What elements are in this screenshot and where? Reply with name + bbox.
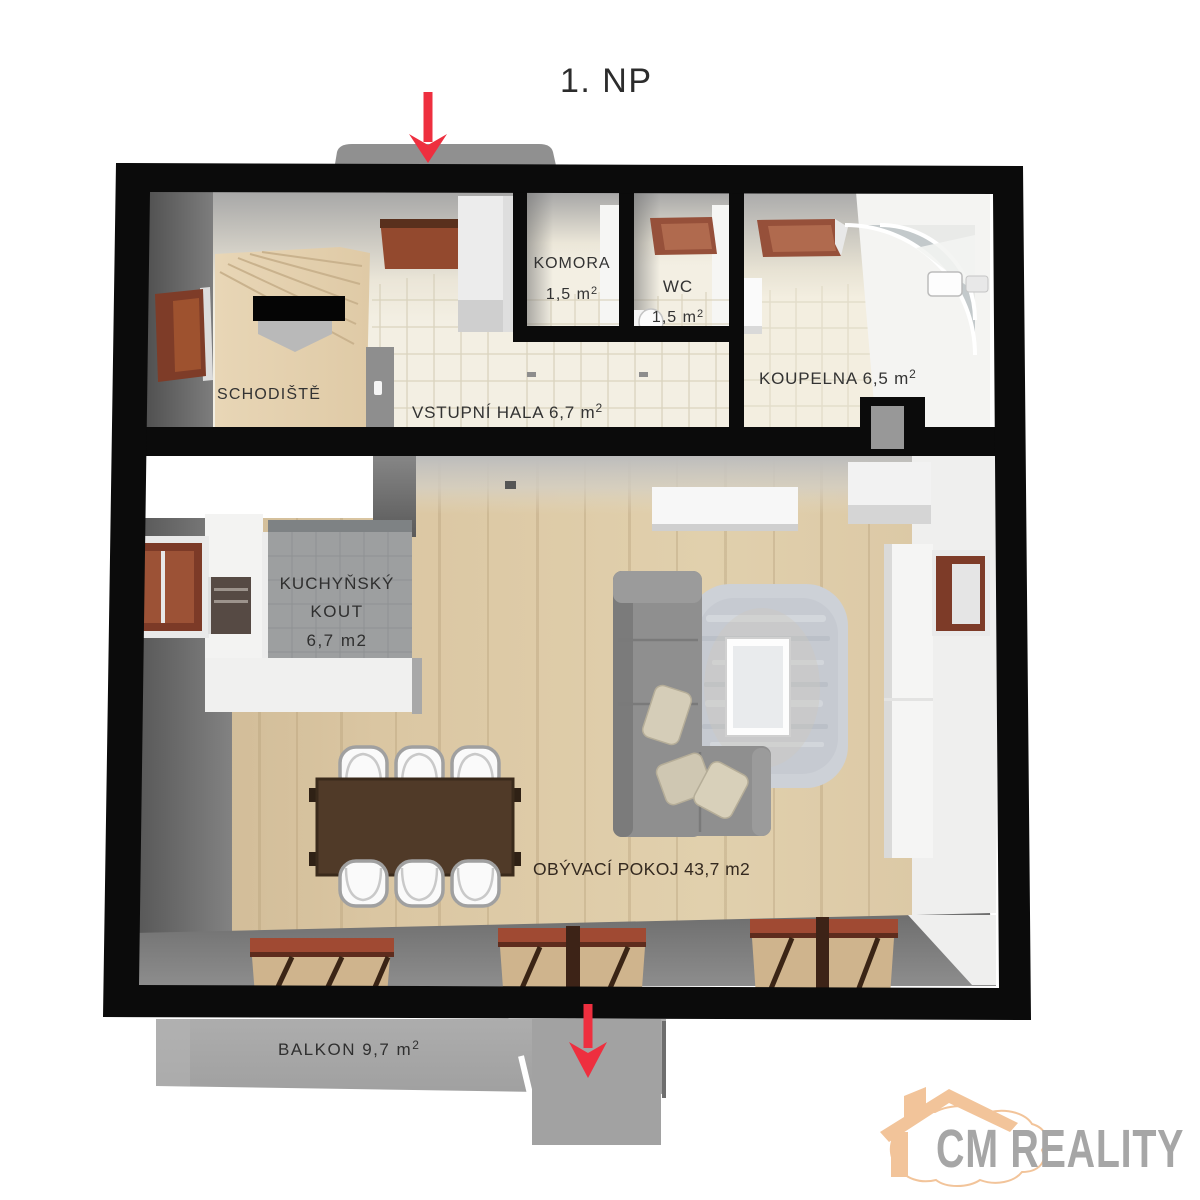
svg-text:KUCHYŇSKÝ: KUCHYŇSKÝ: [280, 574, 395, 593]
svg-text:BALKON 9,7 m2: BALKON 9,7 m2: [278, 1038, 420, 1059]
svg-text:1. NP: 1. NP: [560, 62, 653, 100]
svg-text:KOMORA: KOMORA: [533, 255, 610, 272]
svg-text:VSTUPNÍ HALA 6,7 m2: VSTUPNÍ HALA 6,7 m2: [412, 401, 603, 422]
svg-text:KOUPELNA 6,5 m2: KOUPELNA 6,5 m2: [759, 367, 917, 388]
svg-text:WC: WC: [663, 277, 693, 296]
svg-text:1,5 m2: 1,5 m2: [652, 308, 704, 326]
svg-text:1,5 m2: 1,5 m2: [546, 285, 598, 303]
svg-text:OBÝVACÍ POKOJ 43,7 m2: OBÝVACÍ POKOJ 43,7 m2: [533, 859, 750, 879]
svg-text:SCHODIŠTĚ: SCHODIŠTĚ: [217, 384, 321, 403]
svg-text:KOUT: KOUT: [310, 602, 363, 621]
svg-text:6,7 m2: 6,7 m2: [307, 631, 368, 650]
svg-text:CM REALITY: CM REALITY: [936, 1119, 1184, 1180]
